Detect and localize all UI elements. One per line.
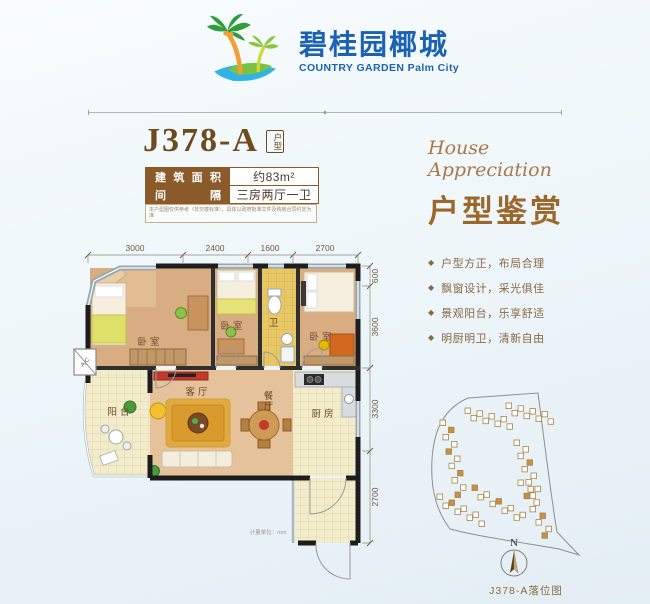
room-label-bedroom2: 卧室 (220, 320, 245, 332)
site-building (490, 501, 496, 507)
room-label-bedroom3: 卧室 (309, 331, 334, 343)
site-building (495, 421, 501, 427)
site-building (514, 440, 520, 446)
site-building (496, 499, 502, 505)
room-label-kitchen: 厨房 (311, 408, 336, 420)
site-building (477, 411, 483, 417)
brand-name-cn: 碧桂园椰城 (299, 30, 459, 59)
site-building (446, 449, 452, 455)
site-building (440, 420, 446, 426)
dim-right-3: 3300 (370, 399, 380, 418)
site-building (471, 415, 477, 421)
site-building (548, 419, 554, 425)
divider-rule (88, 109, 562, 116)
site-building (473, 512, 479, 518)
site-building (526, 480, 532, 486)
site-building (458, 470, 464, 476)
site-building (507, 424, 513, 430)
site-building (506, 403, 512, 409)
site-building (437, 494, 443, 500)
site-building (536, 520, 542, 526)
site-building (472, 485, 478, 491)
site-building (535, 486, 541, 492)
site-building (514, 515, 520, 521)
dim-right-4: 2700 (370, 487, 380, 506)
site-building (518, 406, 524, 412)
room-label-dining: 餐厅 (262, 390, 274, 412)
diamond-bullet-icon: ◆ (428, 283, 434, 292)
siteplan-caption: J378-A落位图 (410, 583, 642, 598)
site-building (518, 453, 524, 459)
site-building (465, 408, 471, 414)
site-building (530, 409, 536, 415)
site-building (452, 442, 458, 448)
palm-tree-icon (205, 12, 289, 92)
spec-row-layout: 间隔 三房两厅一卫 (146, 185, 318, 203)
site-building-clusters (437, 403, 554, 538)
dim-right-2: 3600 (370, 317, 380, 336)
diamond-bullet-icon: ◆ (428, 333, 434, 342)
site-building (530, 506, 536, 512)
site-building (534, 500, 540, 506)
site-building (449, 463, 455, 469)
site-building (528, 487, 534, 493)
feature-text: 户型方正，布局合理 (441, 255, 545, 271)
feature-item: ◆ 飘窗设计，采光俱佳 (428, 280, 640, 296)
compass-needle-dark (510, 551, 514, 573)
spec-label-layout: 间隔 (146, 186, 230, 203)
site-building (524, 493, 530, 499)
site-building (452, 478, 458, 484)
unit-title-row: J378-A 户型 (143, 124, 284, 158)
flyer-page: 碧桂园椰城 COUNTRY GARDEN Palm City J378-A 户型… (0, 0, 650, 604)
site-building (484, 492, 490, 498)
room-label-bedroom1: 卧室 (137, 336, 162, 348)
room-label-balcony: 阳台 (107, 406, 132, 418)
site-building (531, 473, 537, 479)
dim-top-4: 2700 (316, 243, 335, 253)
site-building (546, 526, 552, 532)
spec-label-area: 建筑面积 (146, 168, 230, 185)
site-building (540, 513, 546, 519)
unit-note: 计量单位：mm (250, 528, 287, 536)
site-building (461, 485, 467, 491)
site-building (467, 515, 473, 521)
site-building (461, 506, 467, 512)
site-building (512, 410, 518, 416)
feature-text: 明厨明卫，清新自由 (441, 330, 545, 346)
spec-row-area: 建筑面积 约83m² (146, 168, 318, 185)
appreciation-title-cn: 户型鉴赏 (428, 186, 640, 231)
siteplan-drawing: N (410, 382, 642, 604)
spec-value-area: 约83m² (230, 168, 318, 185)
site-building (489, 414, 495, 420)
dim-top-3: 1600 (261, 243, 280, 253)
brand-name-en: COUNTRY GARDEN Palm City (299, 63, 459, 74)
site-building (443, 434, 449, 440)
site-building (536, 416, 542, 422)
site-building (483, 418, 489, 424)
site-building (449, 500, 455, 506)
site-building (502, 508, 508, 514)
diamond-bullet-icon: ◆ (428, 308, 434, 317)
feature-list: ◆ 户型方正，布局合理 ◆ 飘窗设计，采光俱佳 ◆ 景观阳台，乐享舒适 ◆ 明厨… (428, 255, 640, 346)
feature-text: 飘窗设计，采光俱佳 (441, 280, 545, 296)
disclaimer-note: 本户型图仅供参考（非交楼标准），具体以政府批准文件及购房合同约定为准 (145, 204, 317, 223)
site-building (542, 411, 548, 417)
compass-needle-light (514, 551, 518, 573)
site-building (524, 413, 530, 419)
ac-platform: A/C (74, 349, 96, 375)
appreciation-panel: House Appreciation 户型鉴赏 ◆ 户型方正，布局合理 ◆ 飘窗… (428, 138, 640, 355)
dim-top-1: 3000 (126, 243, 145, 253)
site-building (455, 509, 461, 515)
site-building (542, 533, 548, 539)
feature-text: 景观阳台，乐享舒适 (441, 305, 545, 321)
room-label-living: 客厅 (185, 386, 210, 398)
feature-item: ◆ 明厨明卫，清新自由 (428, 330, 640, 346)
site-building (443, 503, 449, 509)
site-building (449, 427, 455, 433)
site-building (522, 466, 528, 472)
site-building (478, 494, 484, 500)
room-label-bath: 卫 (269, 318, 282, 329)
unit-code: J378-A (143, 124, 259, 158)
spec-value-layout: 三房两厅一卫 (230, 186, 318, 203)
appreciation-title-en: House Appreciation (428, 138, 598, 182)
unit-type-badge: 户型 (266, 130, 284, 153)
dim-top-2: 2400 (206, 243, 225, 253)
site-building (455, 492, 461, 498)
north-label: N (510, 537, 518, 549)
feature-item: ◆ 户型方正，布局合理 (428, 255, 640, 271)
feature-item: ◆ 景观阳台，乐享舒适 (428, 305, 640, 321)
site-building (455, 456, 461, 462)
site-building (501, 416, 507, 422)
spec-table: 建筑面积 约83m² 间隔 三房两厅一卫 (145, 167, 319, 204)
site-building (520, 512, 526, 518)
site-building (523, 447, 529, 453)
dim-right-1: 600 (370, 269, 380, 283)
brand-header: 碧桂园椰城 COUNTRY GARDEN Palm City (205, 12, 459, 92)
site-building (508, 505, 514, 511)
site-building (527, 460, 533, 466)
site-building (479, 521, 485, 527)
diamond-bullet-icon: ◆ (428, 258, 434, 267)
site-building (530, 493, 536, 499)
site-building (518, 480, 524, 486)
floorplan-drawing: A/C 卧室 卧室 卫 卧室 客厅 餐厅 厨房 阳台 3000 2400 160… (68, 241, 398, 601)
